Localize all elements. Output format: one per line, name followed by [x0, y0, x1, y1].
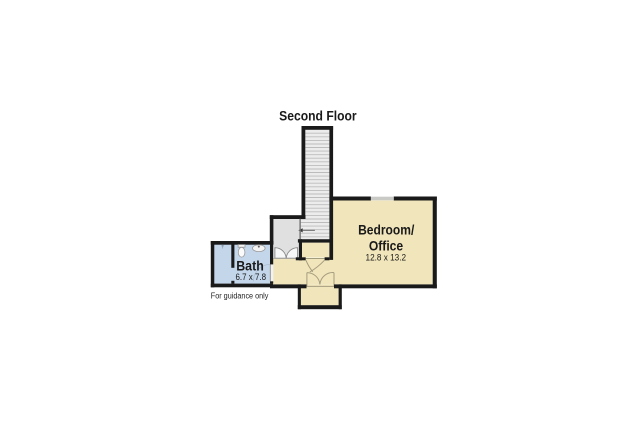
svg-text:Second Floor: Second Floor — [279, 109, 357, 124]
svg-text:Bedroom/: Bedroom/ — [358, 222, 414, 237]
svg-text:12.8 x 13.2: 12.8 x 13.2 — [366, 252, 407, 262]
svg-text:Office: Office — [369, 239, 404, 254]
svg-text:For guidance only: For guidance only — [211, 292, 269, 301]
svg-text:6.7 x 7.8: 6.7 x 7.8 — [236, 272, 267, 282]
